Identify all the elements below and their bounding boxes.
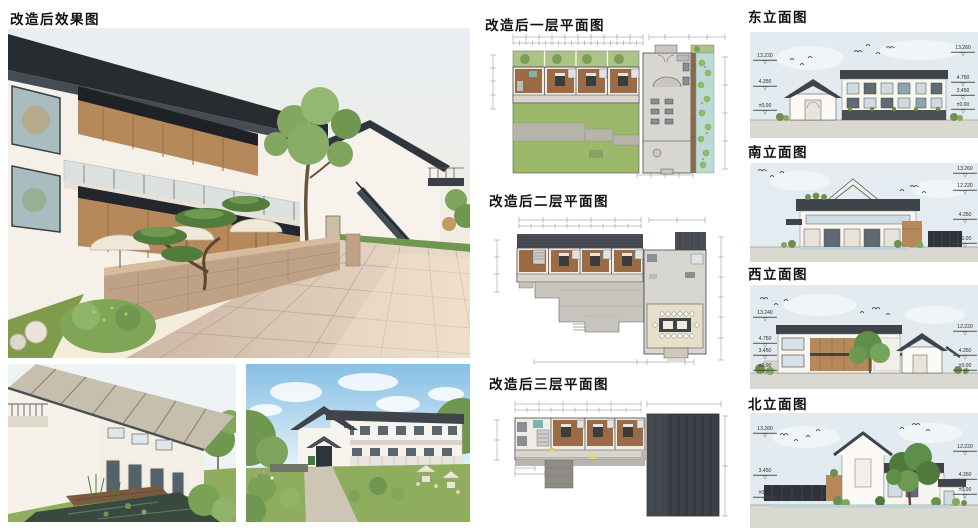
main-roof <box>641 414 719 516</box>
right-building <box>644 232 706 360</box>
water-strip <box>800 247 910 250</box>
fence <box>764 485 834 501</box>
roof-strip <box>517 234 643 248</box>
hall <box>643 45 691 174</box>
plan3-title: 改造后三层平面图 <box>489 373 609 393</box>
ground <box>750 120 978 138</box>
plan2-drawing <box>489 212 730 367</box>
bin <box>308 456 315 465</box>
elevation-south: 13.260▽ 12.220▽ 4.350▽ ±0.00▽ <box>750 163 978 262</box>
meeting-room <box>647 304 703 348</box>
west-elevation-drawing <box>750 285 978 389</box>
plan1-drawing <box>485 33 730 181</box>
room-strip <box>515 418 645 460</box>
main-render-illustration <box>8 28 470 358</box>
lawn-render-illustration <box>246 364 470 522</box>
planter-wall <box>270 464 308 472</box>
eave-strip <box>515 460 645 466</box>
floor-plan-3 <box>489 398 730 526</box>
elevation-west-title: 西立面图 <box>748 263 808 283</box>
elevation-north-title: 北立面图 <box>748 393 808 413</box>
north-elevation-drawing <box>750 413 978 528</box>
presentation-board: { "sections": { "renders": { "title": "改… <box>0 0 978 530</box>
main-building <box>840 70 948 120</box>
elevation-west: 13.240▽ 4.750▽ 3.450▽ ±0.00▽ 12.220▽ 4.3… <box>750 285 978 389</box>
ground <box>750 373 978 389</box>
lower-roof <box>545 460 573 488</box>
renders-title: 改造后效果图 <box>10 8 100 28</box>
pond-render-illustration <box>8 364 236 522</box>
floor-plan-1 <box>485 33 730 181</box>
elevation-east-title: 东立面图 <box>748 6 808 26</box>
terrace <box>535 282 644 332</box>
small-render-pond <box>8 364 236 522</box>
elevation-north: 13.260▽ 3.450▽ ±0.00▽ 12.220▽ 4.350▽ ±0.… <box>750 413 978 528</box>
elevation-east: 13.220▽ 4.350▽ ±0.00▽ 13.260▽ 4.750▽ 3.4… <box>750 32 978 138</box>
side-structure <box>928 231 962 247</box>
east-elevation-drawing <box>750 32 978 138</box>
pond-garden <box>691 45 714 173</box>
south-elevation-drawing <box>750 163 978 262</box>
floor-plan-2 <box>489 212 730 367</box>
ground <box>750 505 978 528</box>
plan3-drawing <box>489 398 730 526</box>
water-strip <box>770 505 950 508</box>
plan2-title: 改造后二层平面图 <box>489 190 609 210</box>
plan1-title: 改造后一层平面图 <box>485 14 605 34</box>
elevation-south-title: 南立面图 <box>748 141 808 161</box>
small-render-lawn <box>246 364 470 522</box>
main-render <box>8 28 470 358</box>
guest-wing <box>513 51 639 103</box>
courtyard <box>513 103 639 173</box>
